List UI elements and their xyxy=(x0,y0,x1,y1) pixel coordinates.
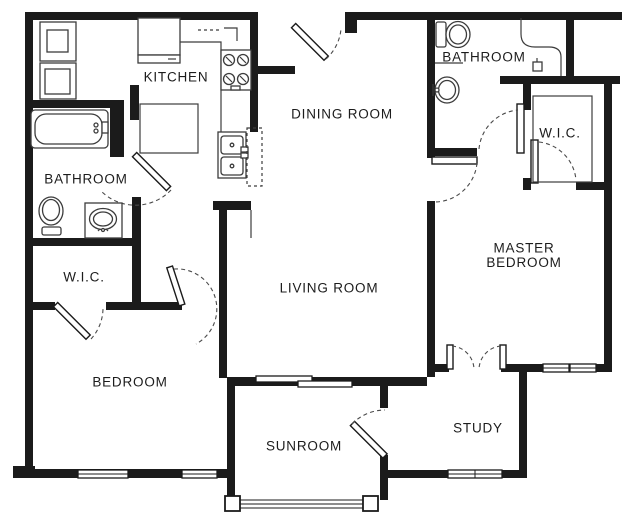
sunroom-label: SUNROOM xyxy=(266,439,342,454)
bathroom-master-door xyxy=(479,104,524,153)
floor-plan-canvas: KITCHEN DINING ROOM BATHROOM W.I.C. BEDR… xyxy=(0,0,640,525)
bedroom-label: BEDROOM xyxy=(92,375,167,390)
shower-icon xyxy=(521,18,561,76)
interior-walls xyxy=(33,12,612,378)
wic-master-label: W.I.C. xyxy=(539,126,581,141)
kitchen-label: KITCHEN xyxy=(144,70,209,85)
master-bedroom-windows xyxy=(543,364,596,372)
master-hall-door xyxy=(432,157,477,202)
entry-door xyxy=(291,23,341,60)
dining-room-label: DINING ROOM xyxy=(291,107,393,122)
bathroom-left-sink-icon xyxy=(85,203,122,238)
master-bedroom-label-line2: BEDROOM xyxy=(486,255,561,270)
washer-dryer-icon xyxy=(40,22,76,99)
pantry-closet xyxy=(140,104,198,153)
sunroom-window-wall xyxy=(225,496,378,511)
bedroom-window-right xyxy=(182,470,217,478)
bathtub-icon xyxy=(31,110,108,148)
floor-plan-page: KITCHEN DINING ROOM BATHROOM W.I.C. BEDR… xyxy=(0,0,640,525)
wic-master-door xyxy=(531,140,576,183)
upper-cabinets-icon xyxy=(198,28,237,41)
study-window xyxy=(448,470,502,478)
dishwasher-icon xyxy=(247,128,262,186)
living-room-label: LIVING ROOM xyxy=(280,281,379,296)
bathroom-master-sink-icon xyxy=(433,77,459,103)
toilet-left-icon xyxy=(39,197,63,235)
bathroom-left-label: BATHROOM xyxy=(44,172,127,187)
sunroom-door xyxy=(350,410,387,458)
bathroom-master-label: BATHROOM xyxy=(442,50,525,65)
bedroom-window-left xyxy=(78,470,128,478)
study-label: STUDY xyxy=(453,421,503,436)
master-bedroom-label-line1: MASTER xyxy=(493,241,554,256)
room-labels: KITCHEN DINING ROOM BATHROOM W.I.C. BEDR… xyxy=(44,50,580,454)
kitchen-sink-icon xyxy=(218,132,248,178)
wic-left-door xyxy=(53,302,103,339)
study-french-doors xyxy=(447,345,506,369)
refrigerator-icon xyxy=(138,18,180,63)
wic-left-label: W.I.C. xyxy=(63,270,105,285)
stove-icon xyxy=(221,50,251,90)
